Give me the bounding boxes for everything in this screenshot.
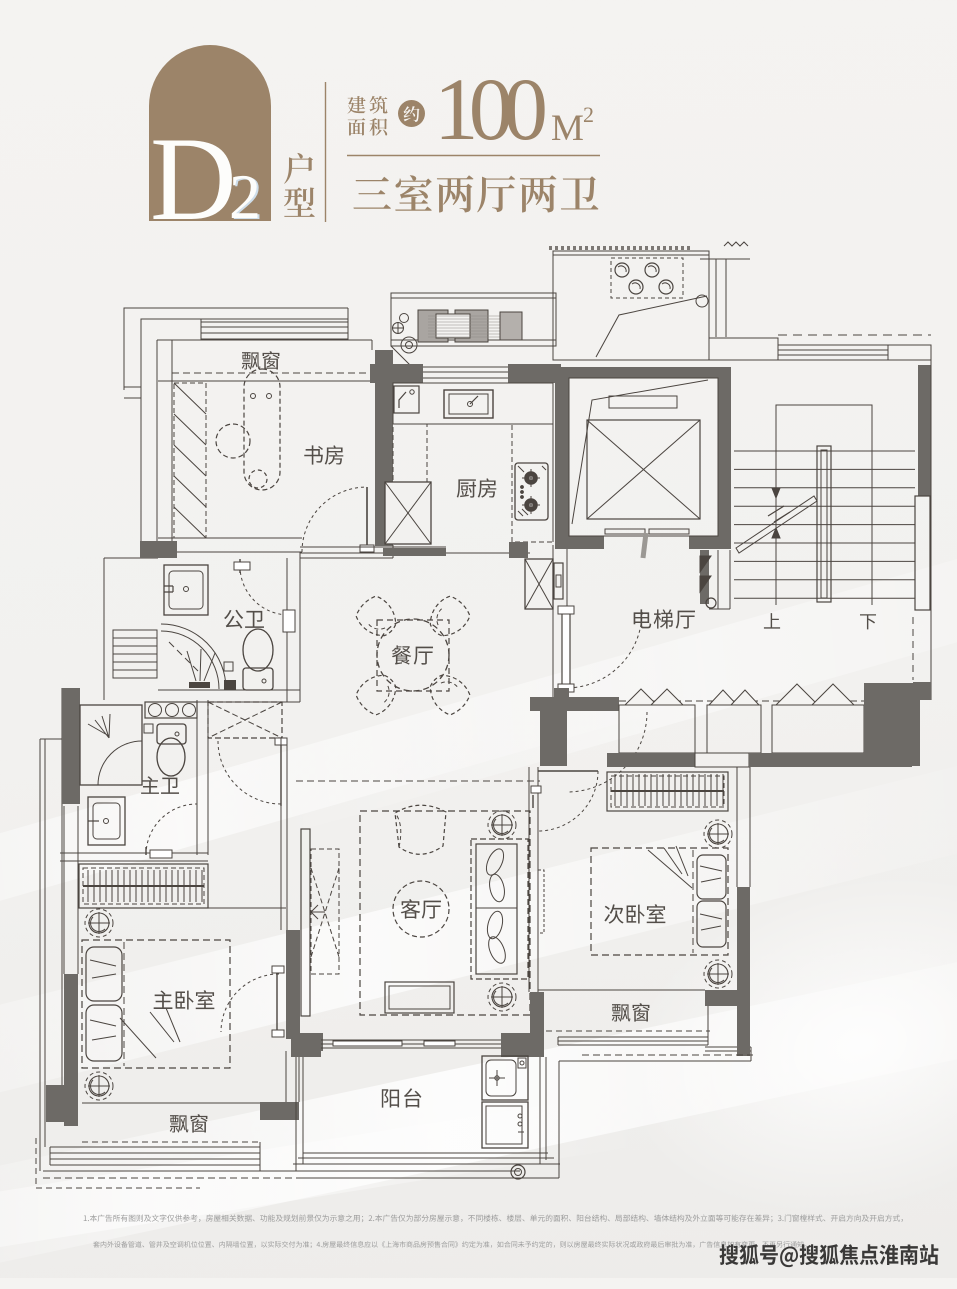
svg-text:2: 2	[229, 161, 261, 232]
svg-text:100: 100	[434, 61, 548, 159]
svg-text:2: 2	[583, 102, 594, 127]
svg-text:M: M	[551, 108, 584, 149]
svg-text:D: D	[150, 112, 237, 245]
